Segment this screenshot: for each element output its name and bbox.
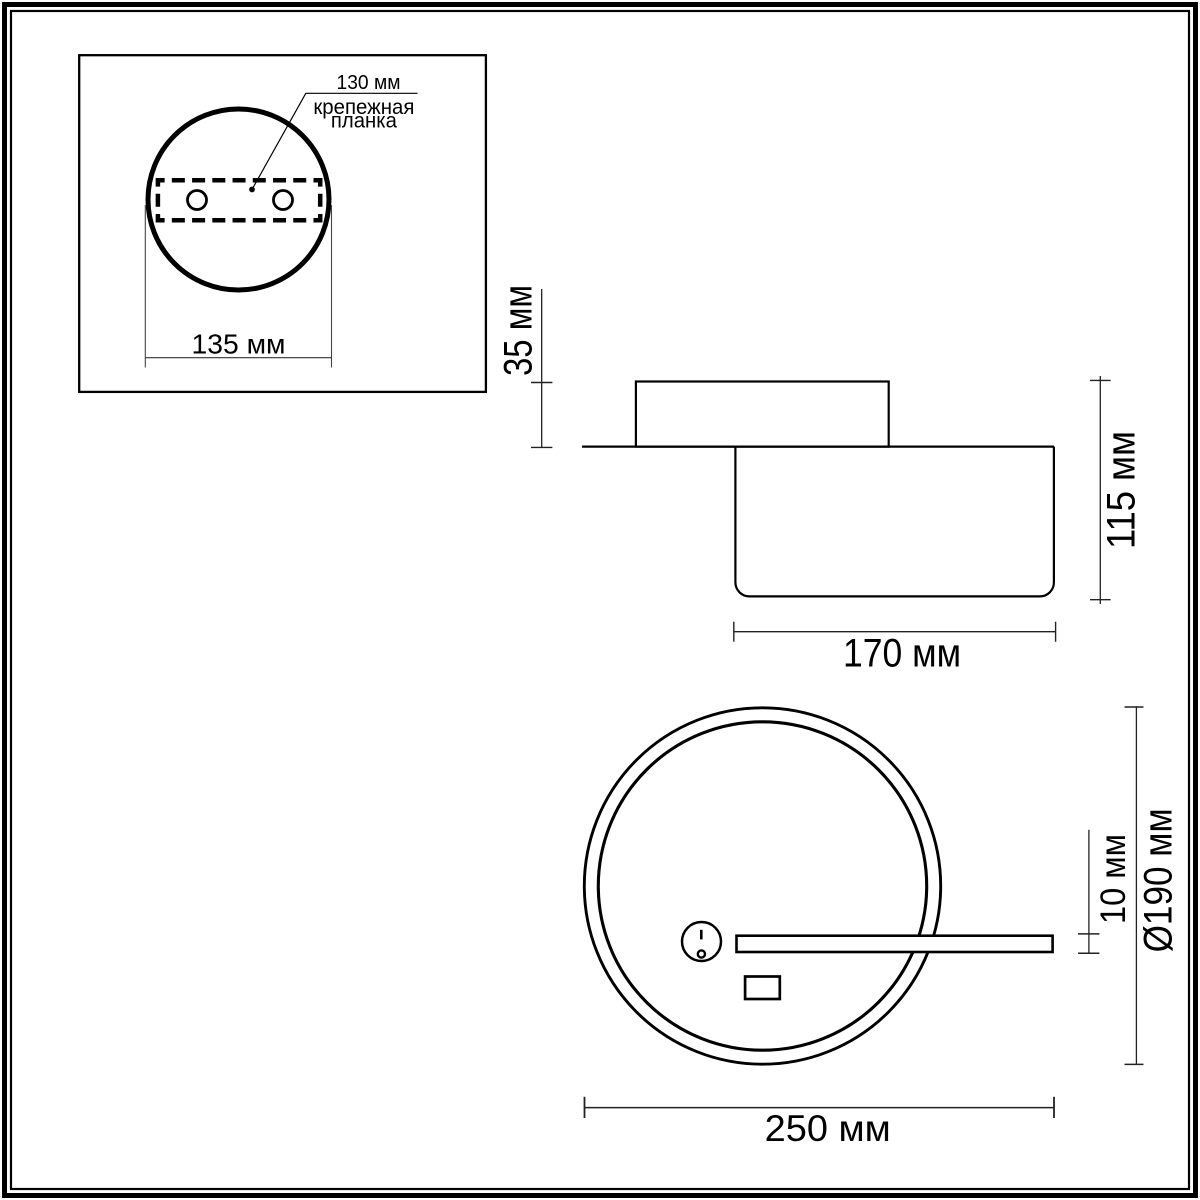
svg-text:130 мм: 130 мм <box>337 72 401 94</box>
svg-text:135 мм: 135 мм <box>192 328 286 359</box>
svg-text:планка: планка <box>331 110 397 133</box>
svg-text:250 мм: 250 мм <box>765 1108 891 1149</box>
svg-text:35 мм: 35 мм <box>497 285 541 376</box>
svg-text:115 мм: 115 мм <box>1100 431 1144 549</box>
svg-text:Ø190 мм: Ø190 мм <box>1137 808 1181 952</box>
svg-text:10 мм: 10 мм <box>1094 834 1133 924</box>
svg-text:170 мм: 170 мм <box>843 631 961 675</box>
